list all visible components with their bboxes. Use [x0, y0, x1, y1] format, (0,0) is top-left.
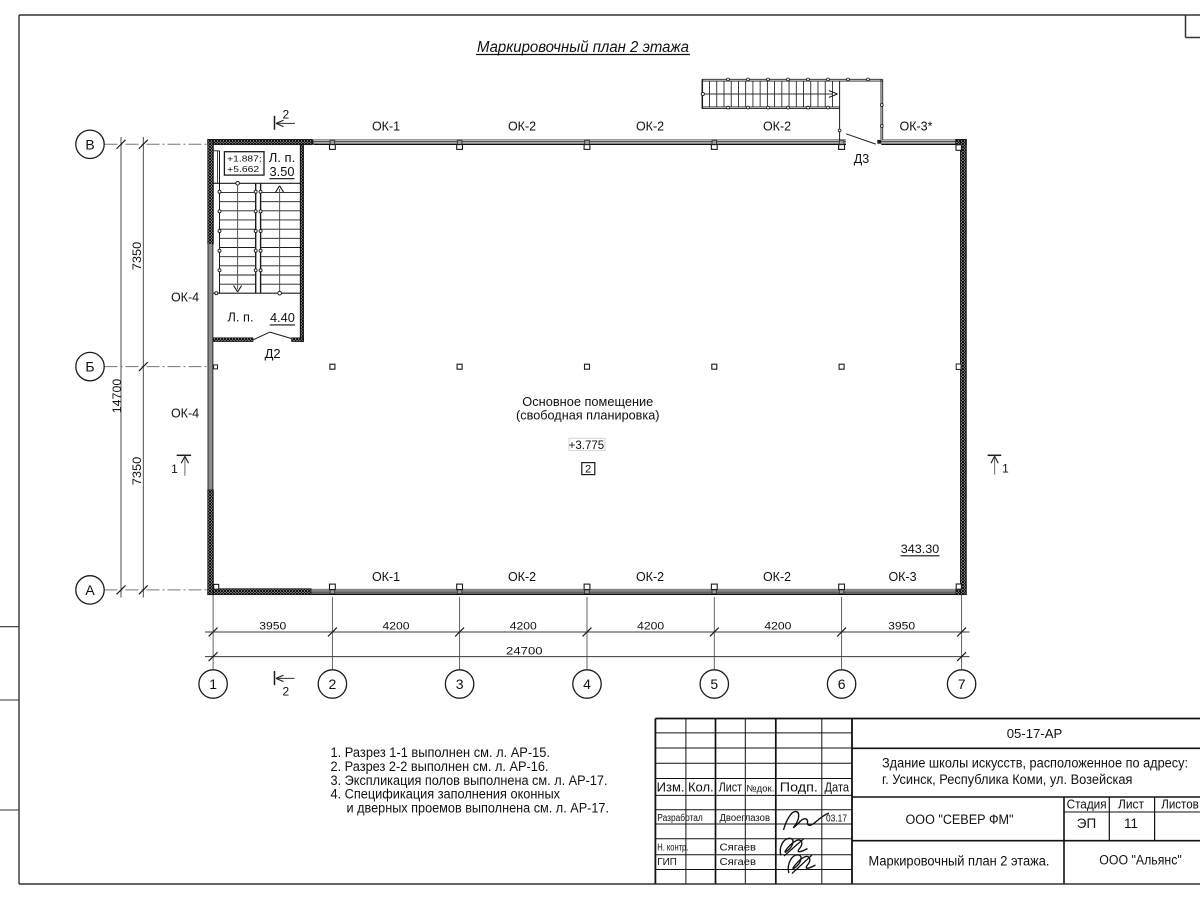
svg-text:4200: 4200: [637, 620, 664, 632]
svg-text:1: 1: [171, 462, 178, 476]
svg-text:Лист: Лист: [1118, 798, 1144, 812]
svg-text:343.30: 343.30: [901, 542, 940, 556]
svg-text:03.17: 03.17: [826, 814, 847, 825]
svg-text:ОК-3*: ОК-3*: [900, 120, 933, 134]
svg-text:А: А: [85, 582, 95, 598]
svg-text:2: 2: [329, 676, 337, 692]
svg-text:7: 7: [958, 676, 966, 692]
svg-text:Стадия: Стадия: [1067, 798, 1107, 812]
svg-text:Лист: Лист: [719, 779, 743, 794]
svg-text:ОК-2: ОК-2: [763, 570, 791, 584]
svg-text:г. Усинск, Республика Коми, ул: г. Усинск, Республика Коми, ул. Возейска…: [882, 772, 1133, 787]
svg-text:Дата: Дата: [825, 779, 850, 794]
svg-text:3.50: 3.50: [270, 164, 295, 179]
svg-text:5: 5: [710, 676, 718, 692]
svg-text:2: 2: [585, 463, 591, 475]
svg-text:4: 4: [583, 676, 591, 692]
svg-text:1: 1: [1002, 462, 1009, 476]
svg-text:ОК-4: ОК-4: [171, 407, 199, 421]
svg-text:3950: 3950: [259, 620, 286, 632]
svg-text:2: 2: [282, 685, 289, 699]
svg-text:Д3: Д3: [854, 152, 869, 166]
svg-text:Листов: Листов: [1161, 798, 1199, 812]
svg-text:ООО "Альянс": ООО "Альянс": [1099, 853, 1182, 868]
svg-text:Л. п.: Л. п.: [228, 310, 254, 325]
svg-text:ОК-2: ОК-2: [508, 120, 536, 134]
svg-text:14700: 14700: [110, 379, 124, 414]
svg-text:11: 11: [1124, 816, 1138, 831]
svg-text:Подп.: Подп.: [780, 779, 818, 794]
svg-text:4.40: 4.40: [270, 310, 295, 325]
svg-text:4200: 4200: [510, 620, 537, 632]
svg-text:Разработал: Разработал: [657, 813, 703, 824]
svg-text:№док.: №док.: [746, 784, 774, 795]
svg-text:Двоеглазов: Двоеглазов: [720, 813, 771, 824]
svg-text:Д2: Д2: [265, 346, 281, 361]
svg-text:и дверных проемов выполнена см: и дверных проемов выполнена см. л. АР-17…: [347, 801, 610, 817]
svg-text:4200: 4200: [764, 620, 791, 632]
svg-text:+3.775: +3.775: [569, 440, 605, 452]
svg-text:ОК-3: ОК-3: [888, 570, 916, 584]
svg-text:Кол.: Кол.: [688, 779, 714, 794]
svg-text:Л. п.: Л. п.: [269, 150, 296, 165]
svg-text:24700: 24700: [506, 646, 543, 658]
svg-text:3: 3: [456, 676, 464, 692]
svg-text:7350: 7350: [130, 242, 144, 271]
svg-text:1: 1: [209, 676, 217, 692]
svg-text:ОК-2: ОК-2: [636, 570, 664, 584]
svg-text:ЭП: ЭП: [1077, 816, 1096, 831]
svg-text:Сягаев: Сягаев: [720, 857, 757, 868]
svg-text:05-17-АР: 05-17-АР: [1007, 726, 1063, 741]
svg-text:Н. контр.: Н. контр.: [657, 842, 688, 853]
svg-text:ОК-2: ОК-2: [508, 570, 536, 584]
svg-text:Б: Б: [85, 359, 94, 375]
svg-text:6: 6: [838, 676, 846, 692]
svg-text:Сягаев: Сягаев: [720, 842, 757, 853]
svg-text:ОК-2: ОК-2: [763, 120, 791, 134]
svg-text:+5.662: +5.662: [227, 165, 260, 174]
svg-text:2: 2: [282, 108, 289, 122]
svg-text:Здание школы искусств, располо: Здание школы искусств, расположенное по …: [882, 756, 1188, 771]
svg-text:4200: 4200: [383, 620, 410, 632]
svg-text:В: В: [85, 136, 94, 152]
svg-text:3950: 3950: [888, 620, 915, 632]
svg-text:ОК-1: ОК-1: [372, 570, 400, 584]
svg-text:ГИП: ГИП: [657, 857, 677, 868]
svg-text:ОК-4: ОК-4: [171, 291, 199, 305]
svg-text:ОК-2: ОК-2: [636, 120, 664, 134]
svg-text:ООО "СЕВЕР ФМ": ООО "СЕВЕР ФМ": [906, 812, 1014, 827]
svg-text:Маркировочный план 2 этажа: Маркировочный план 2 этажа: [477, 39, 689, 56]
svg-text:Изм.: Изм.: [657, 779, 685, 794]
svg-text:+1.887;: +1.887;: [227, 155, 262, 164]
svg-text:7350: 7350: [130, 457, 144, 486]
svg-text:ОК-1: ОК-1: [372, 120, 400, 134]
svg-text:Маркировочный план 2 этажа.: Маркировочный план 2 этажа.: [869, 854, 1050, 869]
svg-text:(свободная планировка): (свободная планировка): [516, 407, 660, 422]
